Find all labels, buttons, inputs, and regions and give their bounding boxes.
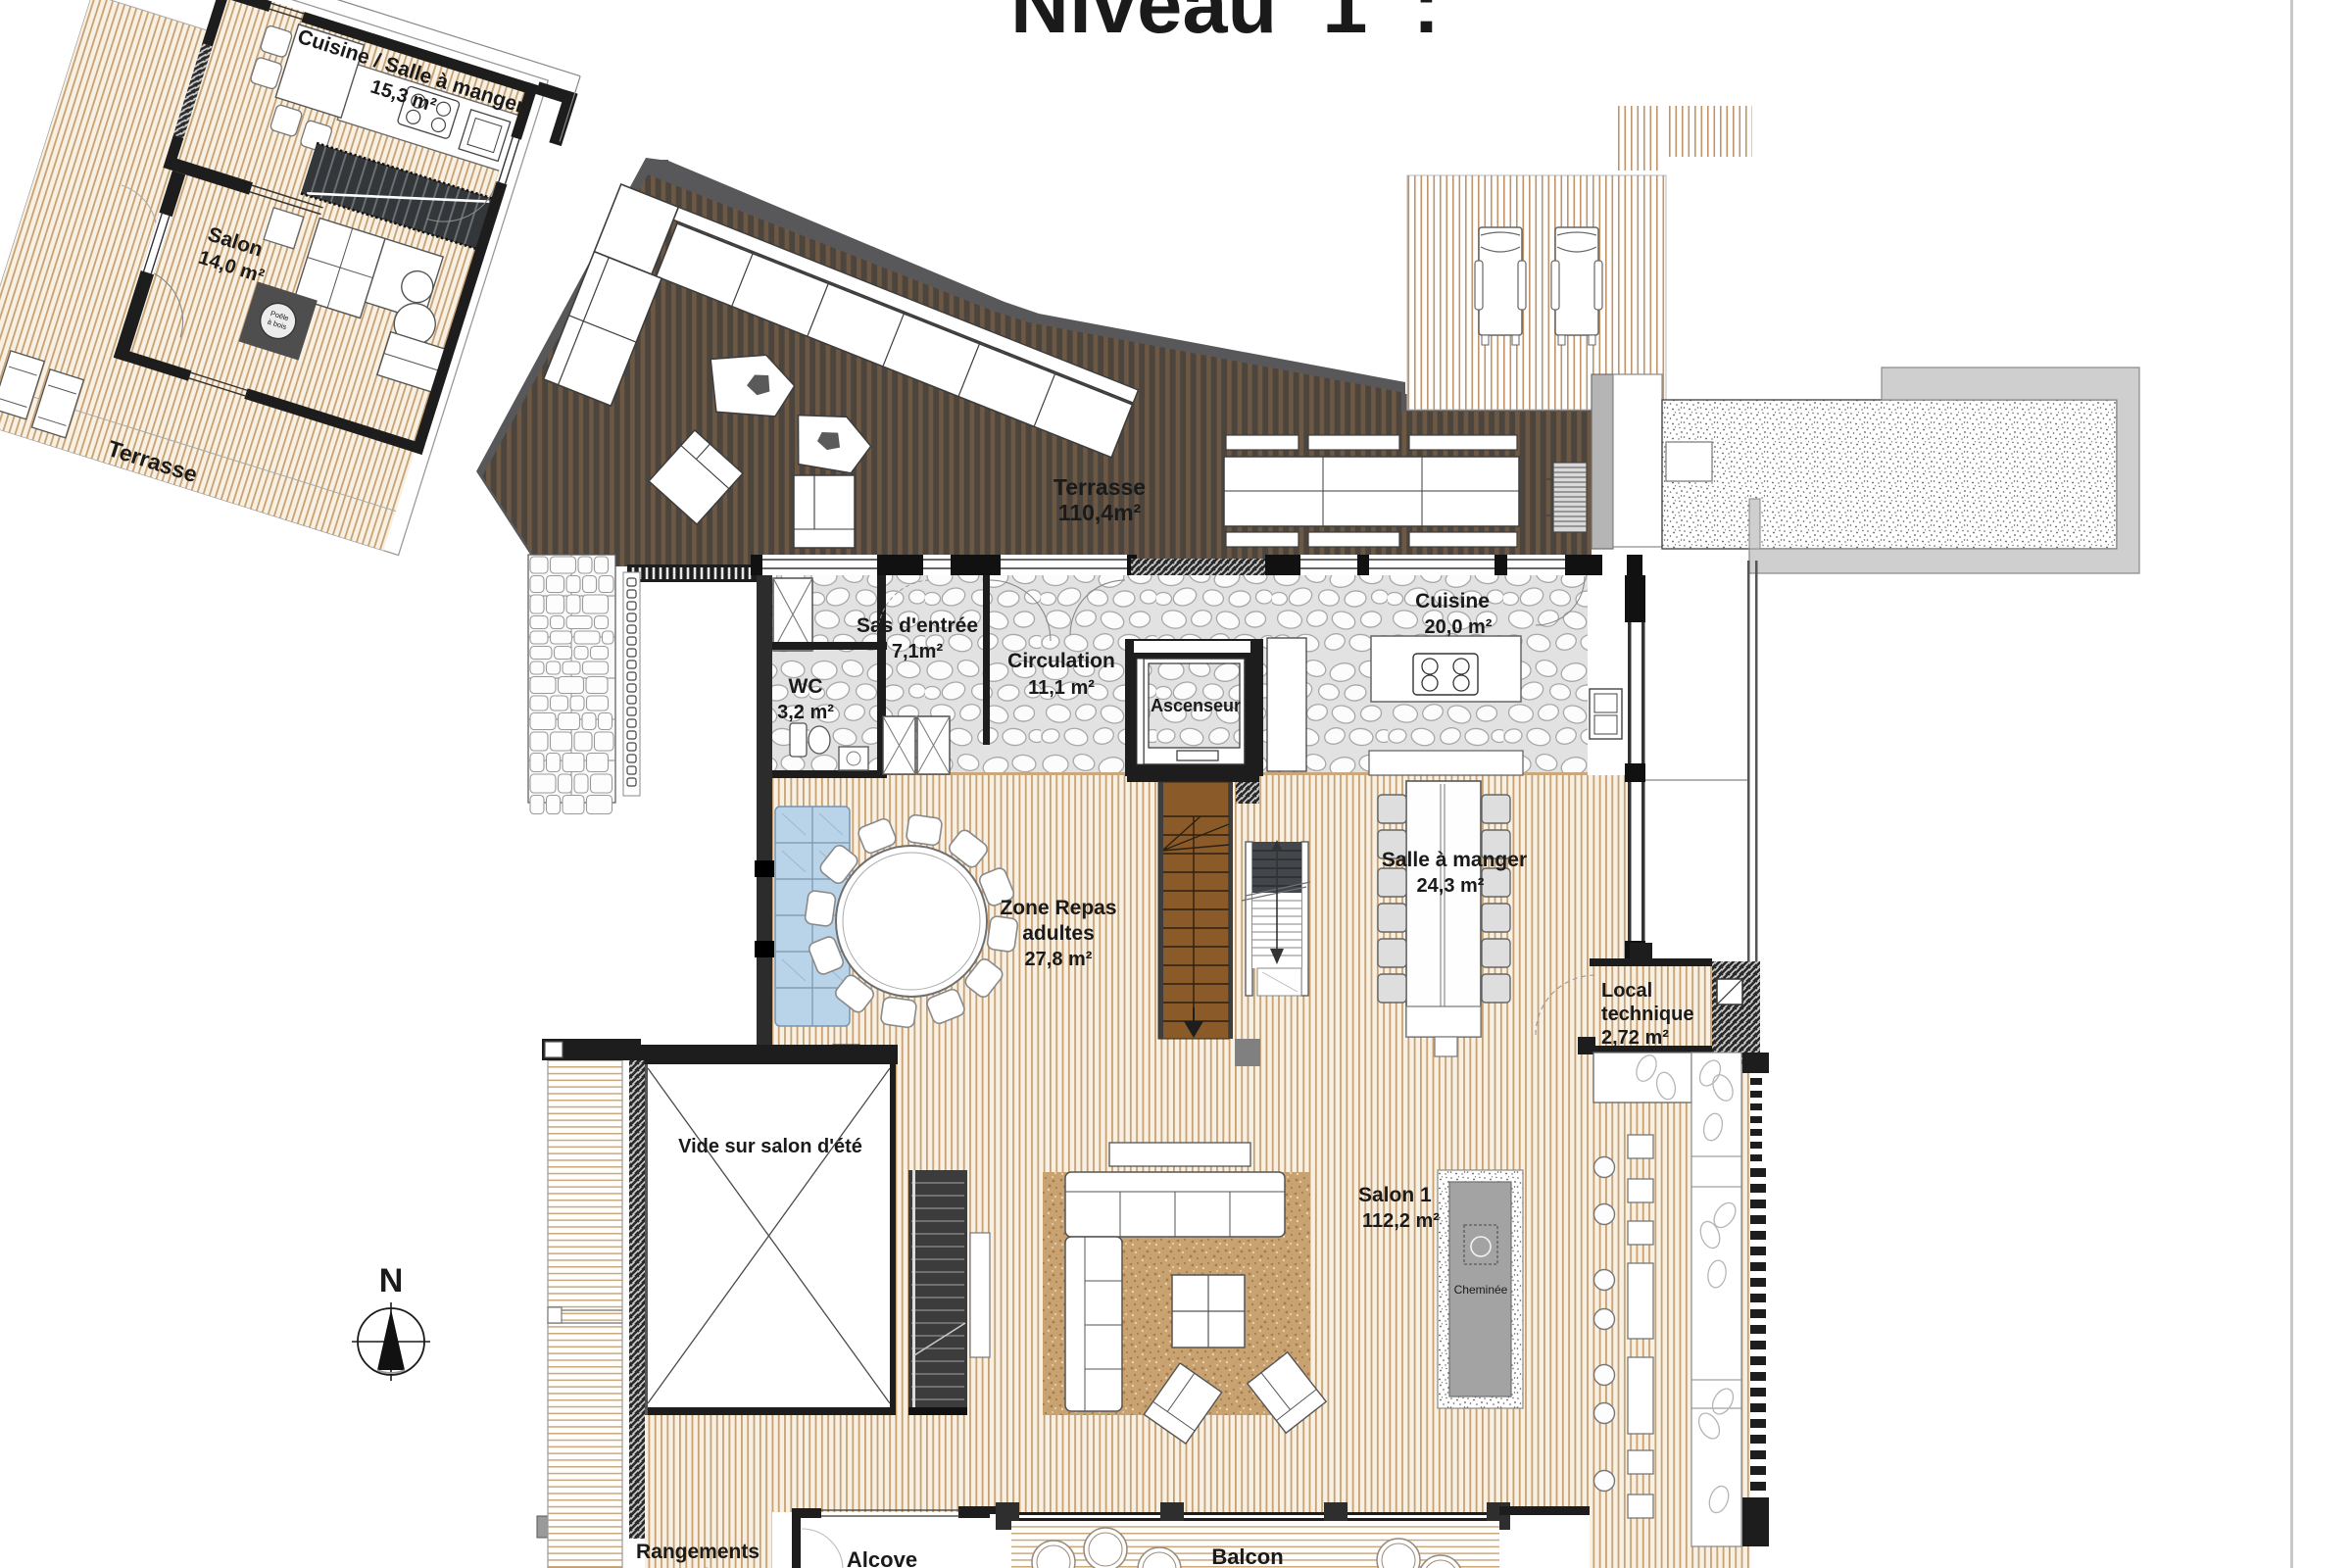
svg-text:Sas d'entrée: Sas d'entrée xyxy=(857,614,978,637)
svg-text:110,4m²: 110,4m² xyxy=(1058,500,1142,525)
svg-text:112,2 m²: 112,2 m² xyxy=(1362,1210,1440,1232)
svg-text:Zone Repas: Zone Repas xyxy=(1000,897,1116,919)
svg-text:Salle à manger: Salle à manger xyxy=(1382,849,1527,871)
svg-text:Balcon: Balcon xyxy=(1211,1544,1283,1568)
svg-text:3,2 m²: 3,2 m² xyxy=(777,702,834,723)
svg-text:Cuisine: Cuisine xyxy=(1415,590,1490,612)
svg-text:adultes: adultes xyxy=(1022,922,1095,945)
svg-text:11,1 m²: 11,1 m² xyxy=(1028,677,1095,699)
svg-text:Ascenseur: Ascenseur xyxy=(1151,696,1241,715)
svg-text:27,8 m²: 27,8 m² xyxy=(1025,949,1093,970)
svg-text:24,3 m²: 24,3 m² xyxy=(1417,875,1485,897)
svg-text:20,0 m²: 20,0 m² xyxy=(1425,616,1493,638)
svg-text:Local: Local xyxy=(1601,980,1652,1002)
svg-text:technique: technique xyxy=(1601,1004,1693,1025)
svg-text:N: N xyxy=(379,1262,404,1299)
svg-text:Salon 1: Salon 1 xyxy=(1358,1184,1432,1206)
svg-text:Niveau 1 :: Niveau 1 : xyxy=(1010,0,1440,50)
svg-text:WC: WC xyxy=(789,675,823,698)
svg-text:Cheminée: Cheminée xyxy=(1454,1283,1508,1297)
svg-text:7,1m²: 7,1m² xyxy=(892,641,944,662)
svg-text:2,72 m²: 2,72 m² xyxy=(1601,1027,1669,1049)
svg-text:Alcove: Alcove xyxy=(847,1547,917,1568)
svg-text:Vide sur salon d'été: Vide sur salon d'été xyxy=(678,1136,862,1157)
svg-text:Circulation: Circulation xyxy=(1007,650,1115,672)
svg-text:Terrasse: Terrasse xyxy=(1053,474,1146,500)
svg-text:Rangements: Rangements xyxy=(636,1541,759,1563)
